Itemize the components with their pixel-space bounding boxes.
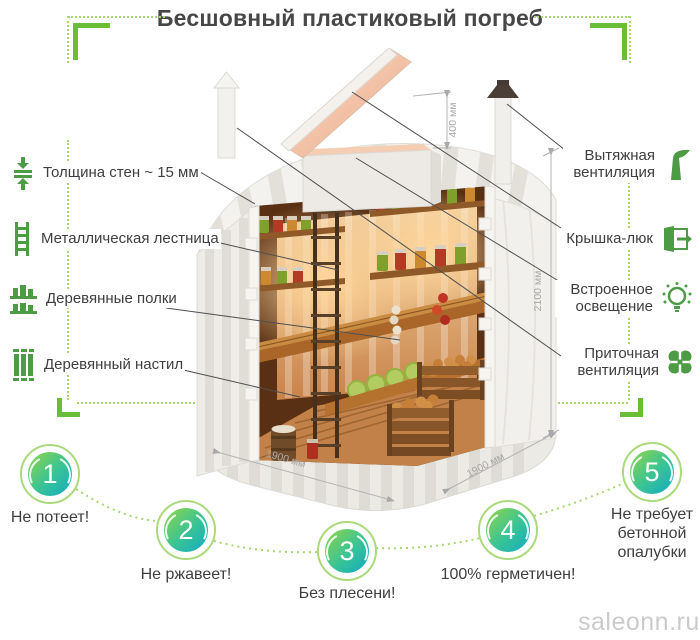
feature-label: Встроенное освещение (555, 280, 655, 317)
feature-label: Деревянные полки (44, 289, 179, 308)
feature-shelves: Деревянные полки (10, 283, 179, 314)
hatch-icon (662, 226, 692, 252)
benefit-label-2: Не ржавеет! (136, 566, 236, 585)
lighting-icon (662, 282, 692, 314)
exhaust-vent-icon (664, 148, 692, 180)
planks-icon (12, 349, 35, 381)
feature-label: Вытяжная вентиляция (563, 146, 657, 183)
ladder-icon (12, 222, 32, 256)
feature-label: Толщина стен ~ 15 мм (41, 163, 201, 182)
feature-ladder: Металлическая лестница (12, 222, 221, 256)
feature-label: Металлическая лестница (39, 229, 221, 248)
benefit-label-5: Не требует бетонной опалубки (604, 506, 700, 563)
benefit-circle-1: 1 (20, 444, 80, 504)
benefit-number: 1 (42, 461, 57, 488)
feature-planks: Деревянный настил (12, 349, 185, 381)
supply-vent-icon (668, 350, 692, 374)
benefit-circle-2: 2 (156, 500, 216, 560)
benefit-label-3: Без плесени! (297, 585, 397, 604)
callout-lines (166, 92, 565, 397)
benefit-number: 5 (644, 459, 659, 486)
feature-wall-thickness: Толщина стен ~ 15 мм (12, 156, 201, 190)
feature-hatch: Крышка-люк (564, 226, 692, 252)
feature-exhaust-vent: Вытяжная вентиляция (563, 146, 692, 183)
feature-label: Деревянный настил (42, 355, 185, 374)
feature-label: Крышка-люк (564, 229, 655, 248)
watermark: saleonn.ru (578, 608, 698, 637)
benefit-number: 3 (339, 538, 354, 565)
infographic: Бесшовный пластиковый погреб (0, 0, 700, 640)
wall-thickness-icon (12, 156, 34, 190)
benefit-circle-5: 5 (622, 442, 682, 502)
feature-label: Приточная вентиляция (567, 344, 661, 381)
feature-supply-vent: Приточная вентиляция (567, 344, 692, 381)
benefit-circle-4: 4 (478, 500, 538, 560)
feature-lighting: Встроенное освещение (555, 280, 692, 317)
benefit-label-4: 100% герметичен! (418, 566, 598, 585)
benefit-label-1: Не потеет! (0, 509, 100, 528)
shelves-icon (10, 283, 37, 314)
benefit-number: 4 (500, 517, 515, 544)
benefit-circle-3: 3 (317, 521, 377, 581)
benefit-number: 2 (178, 517, 193, 544)
